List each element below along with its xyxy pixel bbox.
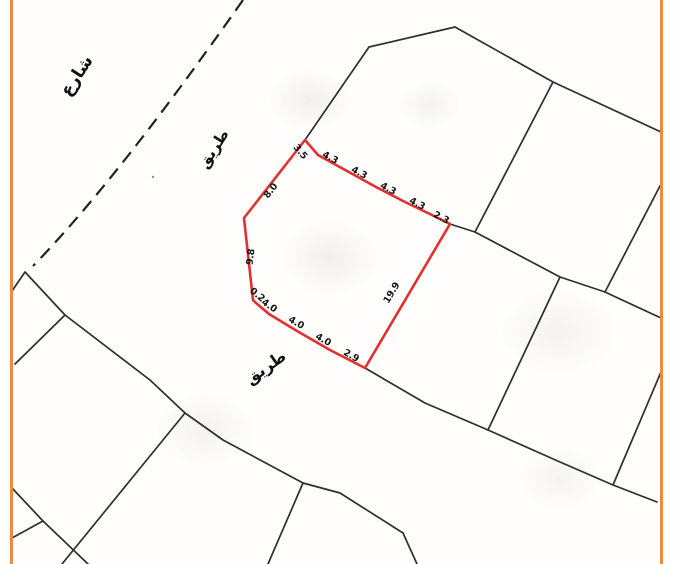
- parcel-boundaries: [12, 27, 661, 564]
- dimension-label: 4.3: [378, 180, 397, 197]
- highlighted-parcel-outline: [244, 140, 450, 368]
- cadastral-map: 3.54.34.34.34.32.319.92.94.04.04.00.29.8…: [0, 0, 677, 564]
- southwest-block-divider: [62, 413, 185, 564]
- street-name-label: طريق: [241, 346, 289, 388]
- frame-right-border: [660, 0, 663, 564]
- dimension-labels: 3.54.34.34.34.32.319.92.94.04.04.00.29.8…: [245, 142, 451, 365]
- dashed-street-line: [33, 0, 243, 266]
- east-block-boundary: [450, 224, 661, 318]
- dimension-label: 19.9: [381, 280, 402, 305]
- dimension-label: 9.8: [245, 248, 258, 266]
- south-road-boundary: [365, 368, 657, 502]
- street-name-label: طريق: [194, 126, 232, 172]
- dimension-label: 4.3: [349, 164, 368, 181]
- cadastral-map-page: 3.54.34.34.34.32.319.92.94.04.04.00.29.8…: [0, 0, 677, 564]
- dimension-label: 3.5: [291, 142, 310, 162]
- southwest-corner-divider: [12, 521, 43, 538]
- southwest-road-boundary: [12, 272, 417, 564]
- dimension-label: 4.0: [286, 314, 306, 332]
- west-block-divider: [15, 315, 65, 364]
- dimension-label: 4.0: [313, 331, 333, 349]
- southeast-corner-divider: [613, 372, 661, 485]
- south-block-divider: [268, 483, 303, 564]
- southeast-block-divider: [488, 277, 560, 430]
- east-block-divider: [605, 184, 661, 292]
- street-name-label: شارع: [56, 52, 97, 100]
- street-labels: شارعطريقطريق: [56, 52, 289, 388]
- scan-speck: [152, 176, 154, 178]
- frame-left-border: [10, 0, 13, 564]
- dimension-label: 2.9: [341, 347, 361, 365]
- dimension-label: 8.0: [262, 181, 281, 201]
- upper-block-divider: [475, 82, 553, 232]
- southwest-corner-boundary: [12, 488, 88, 564]
- upper-block-outline: [305, 27, 661, 140]
